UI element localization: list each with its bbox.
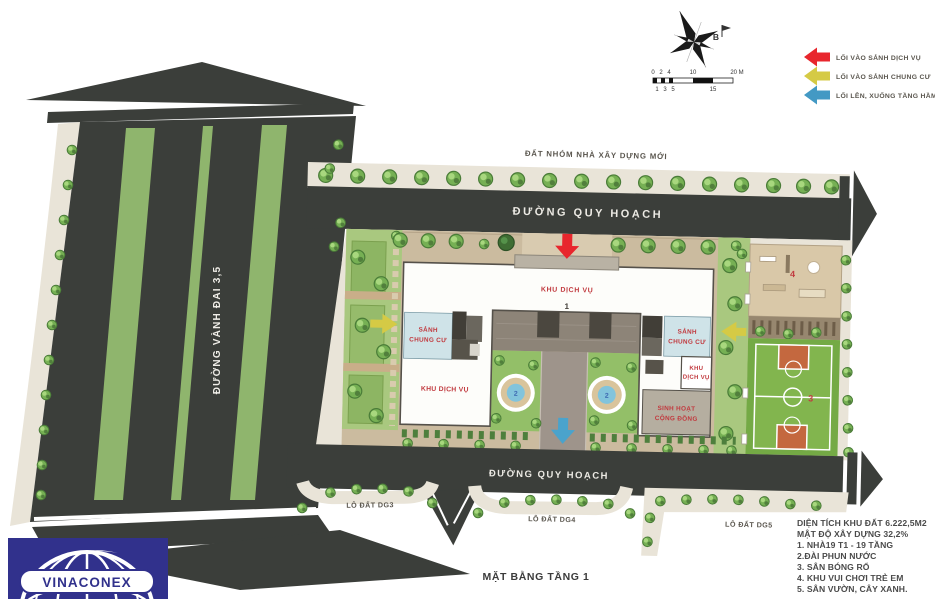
lobby-right bbox=[664, 316, 711, 357]
community-label-1: SINH HOẠT bbox=[657, 405, 695, 413]
service-right-label-2: DỊCH VỤ bbox=[683, 375, 710, 382]
logo-wordmark: VINACONEX bbox=[42, 575, 131, 590]
courtyard-paving bbox=[492, 310, 641, 353]
left-core-1 bbox=[452, 311, 467, 339]
west-garden bbox=[342, 229, 403, 430]
legend: LỐI VÀO SẢNH DỊCH VỤ LỐI VÀO SẢNH CHUNG … bbox=[804, 48, 935, 105]
right-core-3 bbox=[645, 360, 663, 374]
drawing-title: MẶT BẰNG TẦNG 1 bbox=[483, 570, 590, 583]
scale-15: 15 bbox=[710, 87, 717, 93]
left-core-2 bbox=[466, 316, 483, 342]
right-core-2 bbox=[642, 338, 662, 356]
core-block-left bbox=[537, 311, 560, 337]
lobby-right-label-2: CHUNG CƯ bbox=[668, 338, 706, 346]
playground: 4 bbox=[749, 244, 843, 318]
lot-dg5-label: LÔ ĐẤT DG5 bbox=[725, 519, 773, 530]
site-plan-page: ĐƯỜNG VÀNH ĐAI 3,5 ĐẤT NHÓM NHÀ XÂY DỰNG… bbox=[0, 0, 935, 599]
building-number: 1 bbox=[564, 302, 569, 311]
core-block-right bbox=[589, 312, 612, 338]
lobby-left-label-2: CHUNG CƯ bbox=[409, 336, 447, 344]
lobby-left-label-1: SẢNH bbox=[418, 325, 438, 334]
note-5: 5. SÂN VƯỜN, CÂY XANH. bbox=[797, 583, 908, 594]
service-zone-center-label: KHU DỊCH VỤ bbox=[541, 286, 594, 294]
lot-dg4-label: LÔ ĐẤT DG4 bbox=[528, 513, 576, 524]
vinaconex-logo: VINACONEX bbox=[8, 538, 168, 599]
fountain-left-number: 2 bbox=[514, 391, 518, 398]
note-2: 2.ĐÀI PHUN NƯỚC bbox=[797, 550, 876, 561]
note-1: 1. NHÀ19 T1 - 19 TẦNG bbox=[797, 540, 893, 550]
pergola bbox=[748, 316, 840, 340]
scale-10: 10 bbox=[690, 70, 697, 76]
note-area: DIỆN TÍCH KHU ĐẤT 6.222,5M2 bbox=[797, 517, 927, 528]
fountain-right-number: 2 bbox=[605, 393, 609, 400]
note-density: MẬT ĐỘ XÂY DỰNG 32,2% bbox=[797, 528, 909, 539]
note-4: 4. KHU VUI CHƠI TRẺ EM bbox=[797, 572, 903, 583]
ring-road-label: ĐƯỜNG VÀNH ĐAI 3,5 bbox=[210, 266, 223, 394]
service-right-label-1: KHU bbox=[689, 366, 703, 372]
service-box-right bbox=[681, 357, 712, 390]
service-zone-left-label: KHU DỊCH VỤ bbox=[421, 386, 469, 394]
north-label: B bbox=[713, 32, 719, 42]
lot-dg3-label: LÔ ĐẤT DG3 bbox=[346, 499, 394, 510]
site-plan-drawing: ĐƯỜNG VÀNH ĐAI 3,5 ĐẤT NHÓM NHÀ XÂY DỰNG… bbox=[0, 0, 935, 599]
note-3: 3. SÂN BÓNG RỔ bbox=[797, 561, 870, 572]
top-road-arrow-bar bbox=[838, 176, 850, 250]
court-number: 3 bbox=[808, 393, 813, 403]
playground-number: 4 bbox=[790, 269, 795, 279]
basketball-court: 3 bbox=[745, 338, 840, 456]
scale-20m: 20 M bbox=[730, 70, 743, 76]
east-garden-strip bbox=[713, 237, 750, 458]
right-core-1 bbox=[642, 316, 662, 338]
left-core-4 bbox=[470, 344, 480, 356]
lobby-right-label-1: SẢNH bbox=[677, 326, 697, 335]
